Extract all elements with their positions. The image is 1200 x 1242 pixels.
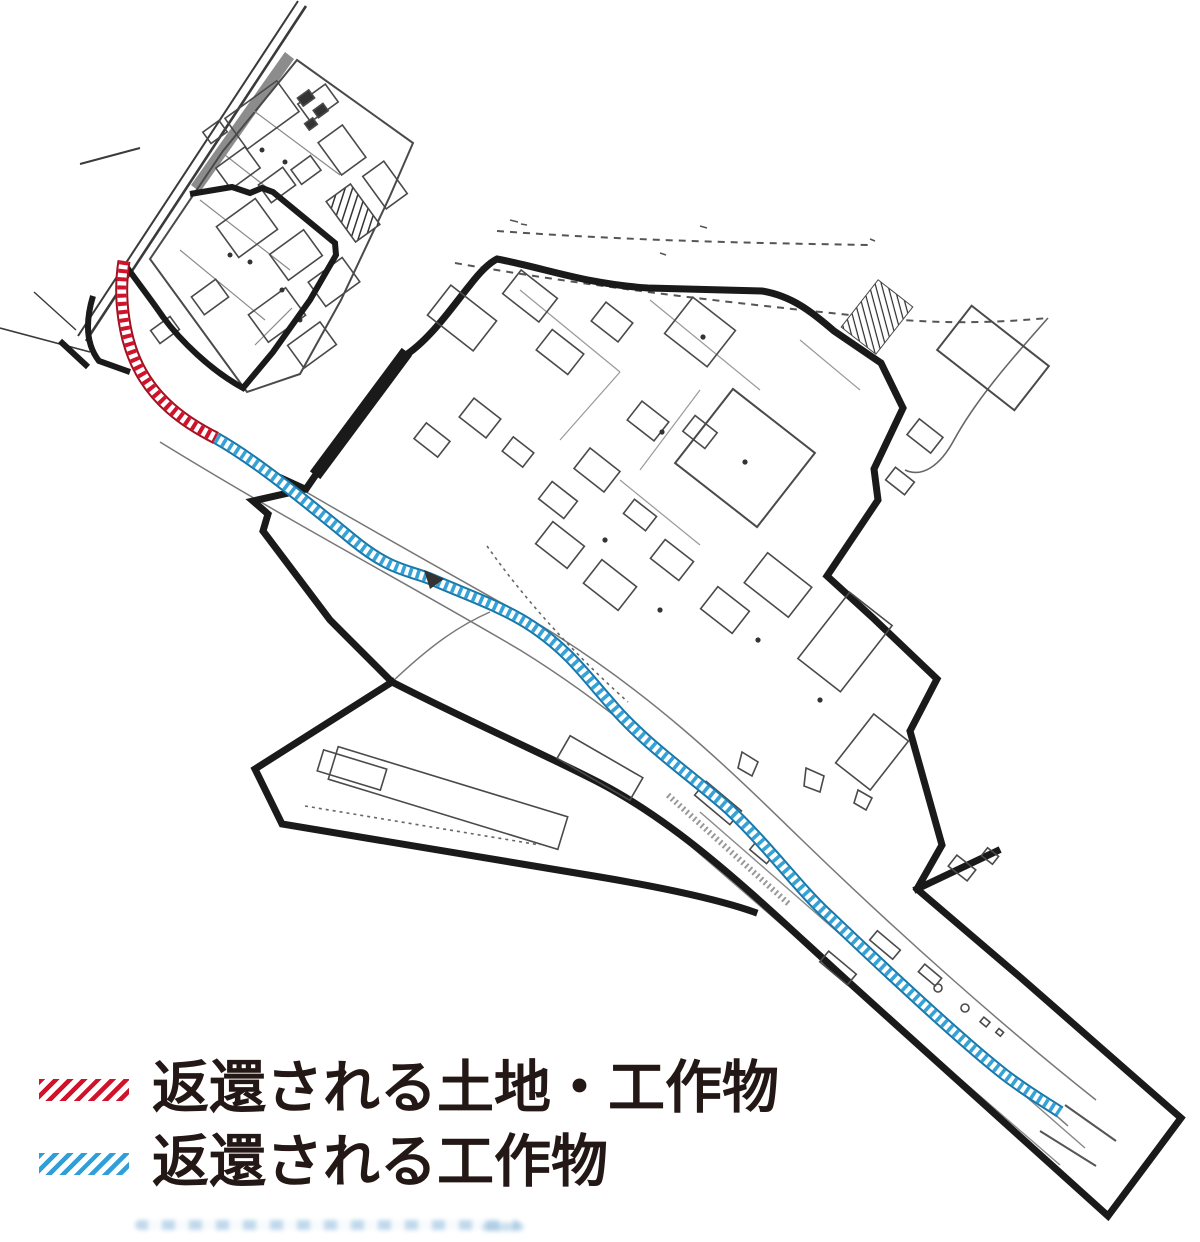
red-hatch-swatch xyxy=(39,1079,129,1101)
returned-land-hatch-path xyxy=(122,261,216,438)
scan-artifact xyxy=(482,1223,524,1231)
roads xyxy=(160,220,1116,1166)
blue-hatch-swatch xyxy=(39,1153,129,1175)
buildings-north xyxy=(151,81,408,368)
north-parcel xyxy=(60,60,413,392)
buildings-main xyxy=(317,270,1049,1036)
building-dots xyxy=(602,334,822,702)
scan-artifact xyxy=(135,1220,520,1230)
legend-label-returned-land: 返還される土地・工作物 xyxy=(152,1060,779,1117)
scanned-map-page: 返還される土地・工作物 返還される工作物 xyxy=(0,0,1200,1242)
legend-label-returned-structures: 返還される工作物 xyxy=(152,1134,608,1191)
